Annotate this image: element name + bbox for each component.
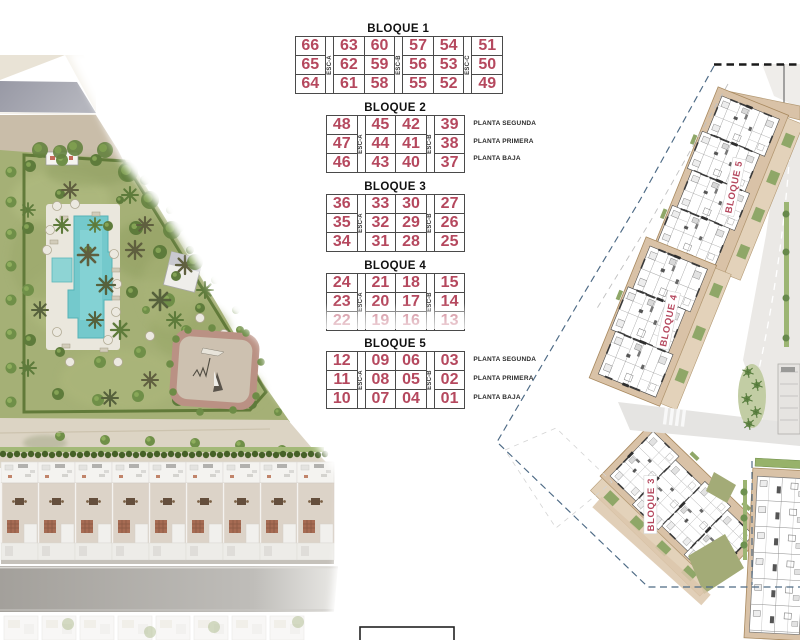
svg-text:BLOQUE 3: BLOQUE 3	[646, 478, 657, 531]
